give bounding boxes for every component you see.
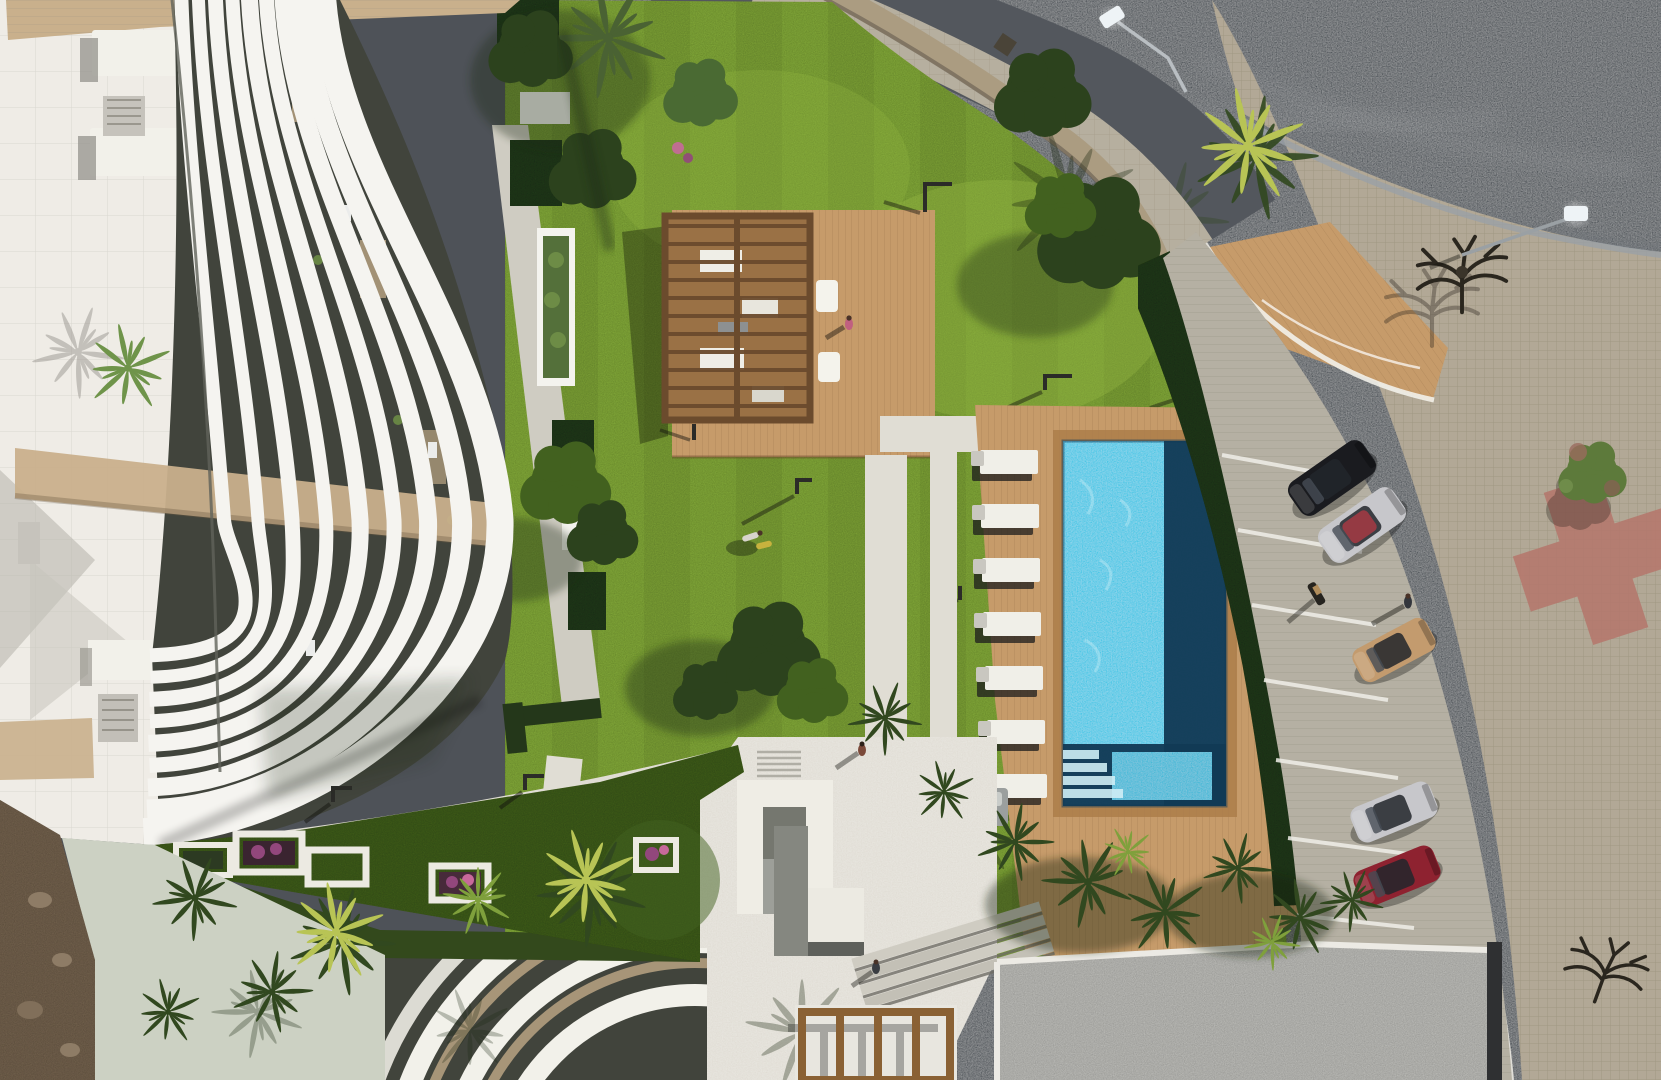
gravel-roof xyxy=(997,942,1502,1080)
deck-sofa xyxy=(818,352,840,382)
equipment-box xyxy=(98,694,138,742)
aerial-render: Aerial top-down architectural rendering:… xyxy=(0,0,1661,1080)
equipment-box xyxy=(103,96,145,136)
roof-edge xyxy=(1487,942,1502,1080)
deck-sofa xyxy=(816,280,838,312)
tree-pit xyxy=(1456,266,1468,278)
lamp-head xyxy=(1564,206,1588,221)
long-planter xyxy=(537,228,575,386)
equipment-box xyxy=(18,522,40,564)
pergola xyxy=(665,216,810,420)
kids-pool xyxy=(1112,752,1212,800)
terrace-wood-patch xyxy=(0,718,94,780)
pergola-frame xyxy=(788,1005,957,1080)
pool-water xyxy=(1063,441,1226,806)
